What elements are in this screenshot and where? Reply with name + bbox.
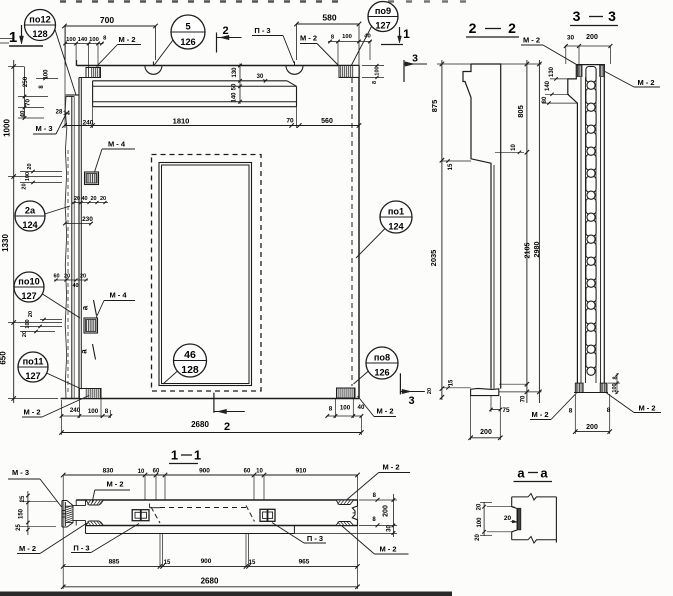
svg-text:М - 2: М - 2 (376, 407, 393, 416)
svg-text:5: 5 (185, 22, 190, 32)
svg-text:28: 28 (56, 110, 63, 116)
svg-text:1: 1 (194, 448, 201, 463)
svg-text:100: 100 (44, 69, 50, 80)
svg-text:по10: по10 (18, 277, 39, 287)
svg-text:100: 100 (66, 37, 76, 43)
svg-text:40: 40 (72, 283, 78, 289)
svg-text:20: 20 (475, 534, 481, 541)
svg-text:128: 128 (32, 29, 47, 39)
svg-text:200: 200 (480, 429, 492, 436)
svg-text:8: 8 (613, 376, 619, 379)
svg-text:40: 40 (20, 110, 27, 117)
svg-text:М - 2: М - 2 (531, 410, 548, 419)
svg-text:8: 8 (569, 408, 573, 415)
svg-text:8: 8 (329, 406, 333, 413)
svg-text:15: 15 (449, 379, 455, 386)
svg-text:805: 805 (516, 105, 525, 118)
svg-text:40: 40 (358, 404, 365, 411)
svg-text:10: 10 (256, 469, 263, 475)
svg-text:1: 1 (403, 27, 410, 41)
svg-text:3: 3 (408, 395, 414, 407)
svg-text:20: 20 (100, 196, 106, 202)
svg-text:2а: 2а (25, 206, 36, 216)
svg-text:1000: 1000 (3, 119, 12, 137)
svg-text:650: 650 (0, 351, 8, 365)
svg-text:М - 4: М - 4 (108, 140, 126, 149)
svg-text:124: 124 (388, 221, 404, 231)
svg-text:2980: 2980 (532, 242, 541, 258)
svg-text:200: 200 (586, 424, 598, 431)
svg-text:М - 3: М - 3 (12, 468, 29, 477)
svg-text:100: 100 (25, 319, 31, 328)
svg-text:10: 10 (138, 469, 145, 475)
svg-text:30: 30 (567, 35, 575, 42)
svg-text:128: 128 (181, 364, 199, 376)
svg-text:М - 2: М - 2 (118, 35, 135, 44)
svg-text:100: 100 (340, 405, 351, 412)
svg-text:по9: по9 (375, 6, 391, 16)
svg-text:2: 2 (222, 25, 228, 37)
svg-text:900: 900 (201, 558, 212, 565)
svg-text:20: 20 (504, 515, 512, 522)
svg-text:М - 3: М - 3 (35, 124, 52, 133)
svg-text:по1: по1 (388, 207, 404, 217)
svg-text:М - 2: М - 2 (106, 480, 123, 489)
svg-text:60: 60 (244, 469, 251, 475)
svg-text:20: 20 (28, 311, 34, 317)
svg-text:1810: 1810 (173, 117, 190, 126)
svg-text:8: 8 (372, 81, 378, 84)
svg-text:910: 910 (296, 468, 307, 475)
svg-text:150: 150 (19, 508, 25, 519)
svg-text:а: а (80, 349, 89, 354)
svg-text:8: 8 (105, 408, 109, 415)
svg-text:20: 20 (90, 196, 96, 202)
svg-text:100: 100 (25, 172, 31, 181)
svg-text:885: 885 (109, 559, 120, 566)
svg-text:965: 965 (299, 559, 310, 566)
svg-text:580: 580 (322, 13, 336, 23)
svg-text:по8: по8 (374, 353, 390, 363)
svg-text:15: 15 (164, 560, 171, 566)
svg-text:3: 3 (573, 8, 581, 24)
svg-text:127: 127 (21, 291, 36, 301)
svg-text:130: 130 (549, 66, 555, 77)
svg-text:по12: по12 (29, 15, 50, 25)
svg-text:М - 2: М - 2 (379, 545, 396, 554)
svg-text:2680: 2680 (191, 420, 209, 429)
svg-text:560: 560 (321, 118, 333, 125)
svg-text:2035: 2035 (429, 250, 438, 267)
svg-text:230: 230 (82, 216, 93, 223)
svg-text:200: 200 (383, 505, 390, 517)
svg-text:20: 20 (427, 388, 433, 394)
svg-text:140: 140 (545, 80, 551, 91)
svg-text:М - 2: М - 2 (23, 408, 40, 417)
svg-text:а: а (81, 305, 90, 310)
svg-text:60: 60 (53, 274, 59, 280)
svg-text:70: 70 (286, 118, 294, 125)
svg-text:М - 2: М - 2 (523, 36, 540, 45)
svg-text:20: 20 (22, 183, 28, 189)
svg-text:900: 900 (199, 468, 210, 475)
svg-text:по11: по11 (23, 357, 44, 367)
svg-text:П - 3: П - 3 (254, 26, 270, 35)
svg-text:2: 2 (224, 421, 230, 433)
svg-text:М - 2: М - 2 (638, 404, 655, 413)
svg-text:25: 25 (16, 524, 22, 531)
svg-text:3: 3 (608, 8, 616, 24)
svg-text:15: 15 (448, 163, 454, 170)
svg-text:П - 3: П - 3 (307, 534, 323, 543)
svg-text:46: 46 (184, 349, 196, 361)
svg-text:2: 2 (469, 20, 477, 36)
svg-text:М - 2: М - 2 (637, 78, 654, 87)
svg-text:2: 2 (508, 20, 516, 36)
svg-text:100: 100 (342, 34, 352, 40)
svg-text:200: 200 (586, 34, 598, 41)
svg-text:14: 14 (63, 111, 70, 117)
svg-text:140: 140 (232, 92, 238, 103)
svg-text:100: 100 (477, 517, 483, 528)
svg-text:М - 2: М - 2 (300, 34, 317, 43)
svg-text:70: 70 (521, 395, 527, 402)
svg-text:100: 100 (88, 408, 99, 415)
svg-text:2105: 2105 (522, 243, 531, 259)
svg-text:126: 126 (374, 367, 389, 377)
svg-text:30: 30 (257, 74, 264, 80)
svg-text:а: а (540, 466, 548, 481)
svg-text:20: 20 (22, 331, 28, 337)
svg-text:100: 100 (375, 66, 381, 75)
svg-text:М - 4: М - 4 (109, 291, 127, 300)
svg-text:126: 126 (180, 37, 195, 47)
svg-text:а: а (517, 466, 525, 481)
svg-text:М - 2: М - 2 (382, 463, 399, 472)
svg-text:700: 700 (100, 15, 114, 25)
svg-text:130: 130 (232, 67, 238, 78)
svg-text:8: 8 (607, 407, 611, 414)
svg-text:20: 20 (80, 274, 86, 280)
svg-text:П - 3: П - 3 (73, 544, 89, 553)
svg-text:70: 70 (25, 99, 32, 106)
svg-text:2680: 2680 (201, 577, 219, 586)
svg-text:124: 124 (22, 220, 38, 230)
svg-text:60: 60 (153, 469, 160, 475)
svg-text:20: 20 (476, 503, 482, 510)
svg-text:127: 127 (25, 371, 40, 381)
svg-text:1: 1 (9, 29, 17, 46)
svg-text:М - 2: М - 2 (19, 544, 36, 553)
svg-text:1: 1 (171, 448, 178, 463)
svg-text:10: 10 (511, 144, 517, 151)
svg-text:1330: 1330 (1, 234, 10, 252)
svg-text:140: 140 (78, 37, 88, 43)
svg-text:3: 3 (412, 53, 418, 65)
svg-text:830: 830 (103, 468, 114, 475)
svg-text:80: 80 (542, 96, 548, 103)
svg-text:50: 50 (232, 83, 238, 90)
svg-text:20: 20 (27, 163, 33, 169)
svg-text:250: 250 (22, 76, 29, 87)
svg-text:875: 875 (430, 100, 439, 113)
svg-text:127: 127 (375, 20, 390, 30)
svg-text:75: 75 (502, 407, 510, 414)
